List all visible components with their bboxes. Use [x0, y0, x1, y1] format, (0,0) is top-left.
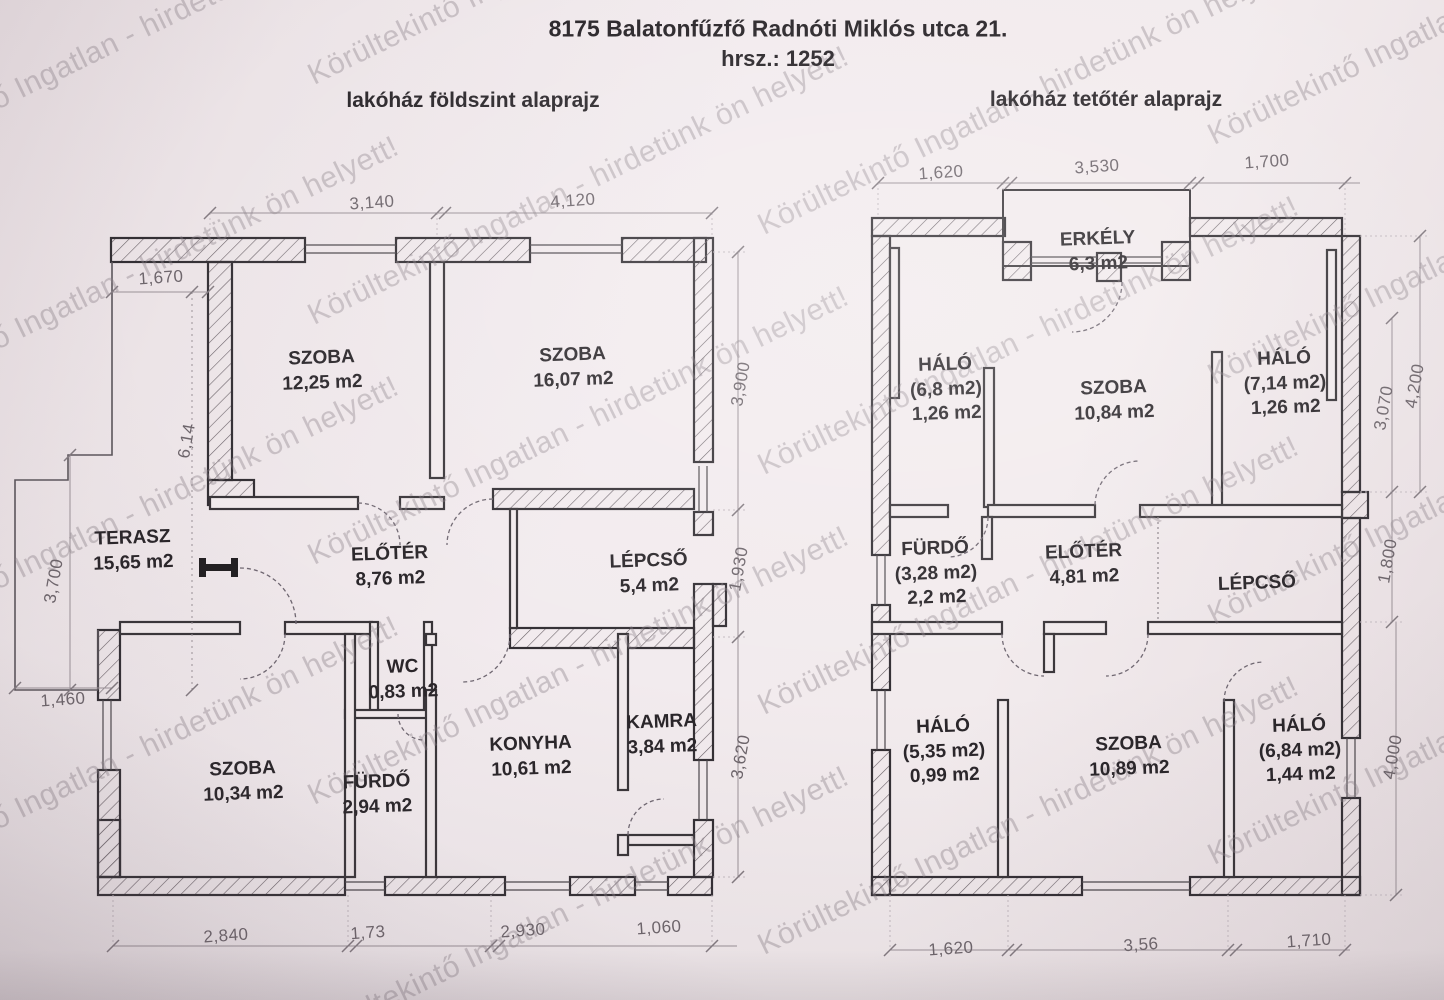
dim-label: 1,620 — [918, 161, 964, 184]
room-label-szoba-1225: SZOBA 12,25 m2 — [281, 345, 363, 397]
room-label-lepcso-attic: LÉPCSŐ — [1218, 570, 1297, 597]
dim-label: 2,840 — [203, 924, 249, 947]
room-area: 16,07 m2 — [533, 367, 614, 394]
room-area: 5,4 m2 — [610, 573, 689, 600]
dim-label: 3,530 — [1074, 155, 1120, 178]
room-area: 10,34 m2 — [203, 781, 284, 808]
room-name: SZOBA — [1073, 375, 1154, 402]
room-area: 3,84 m2 — [627, 734, 699, 761]
room-name: LÉPCSŐ — [609, 548, 688, 575]
dim-label: 2,930 — [500, 919, 546, 942]
room-area: 12,25 m2 — [282, 370, 363, 397]
room-label-wc: WC 0,83 m2 — [367, 654, 438, 706]
room-area: 15,65 m2 — [93, 550, 174, 577]
room-name: WC — [367, 654, 438, 681]
room-name: SZOBA — [281, 345, 362, 372]
room-area: 1,44 m2 — [1259, 762, 1342, 790]
room-label-kamra: KAMRA 3,84 m2 — [626, 709, 698, 761]
dim-label: 1,060 — [636, 916, 682, 939]
room-area: 0,83 m2 — [368, 679, 439, 706]
room-name: LÉPCSŐ — [1218, 570, 1297, 597]
room-label-konyha: KONYHA 10,61 m2 — [489, 731, 573, 783]
room-area-paren: (3,28 m2) — [894, 560, 977, 588]
room-name: ERKÉLY — [1059, 226, 1135, 253]
room-label-szoba-1089: SZOBA 10,89 m2 — [1088, 731, 1170, 783]
room-area: 2,94 m2 — [342, 794, 413, 821]
room-label-halo-714: HÁLÓ (7,14 m2) 1,26 m2 — [1243, 346, 1328, 423]
room-area: 1,26 m2 — [911, 401, 984, 428]
room-label-szoba-1084: SZOBA 10,84 m2 — [1073, 375, 1155, 427]
room-label-halo-535: HÁLÓ (5,35 m2) 0,99 m2 — [902, 714, 987, 791]
room-name: SZOBA — [202, 756, 283, 783]
dim-label: 3,56 — [1123, 934, 1159, 956]
dim-label: 4,120 — [550, 189, 596, 212]
room-label-halo-68: HÁLÓ (6,8 m2) 1,26 m2 — [909, 352, 983, 429]
room-label-eloter-attic: ELŐTÉR 4,81 m2 — [1045, 539, 1124, 591]
room-area: 10,61 m2 — [490, 756, 573, 784]
dim-label: 1,700 — [1244, 150, 1290, 173]
room-label-erkely: ERKÉLY 6,3 m2 — [1059, 226, 1136, 278]
room-label-szoba-1034: SZOBA 10,34 m2 — [202, 756, 284, 808]
floorplan-scan-page: Körültekintő Ingatlan - hirdetünk ön hel… — [0, 0, 1444, 1000]
room-area: 0,99 m2 — [903, 763, 986, 791]
room-label-furdo-ground: FÜRDŐ 2,94 m2 — [341, 769, 412, 821]
room-name: SZOBA — [532, 342, 613, 369]
room-name: HÁLÓ — [902, 714, 985, 742]
terasz-outline — [15, 262, 112, 690]
room-area: 1,26 m2 — [1244, 395, 1327, 423]
room-area-paren: (6,84 m2) — [1258, 737, 1341, 765]
dim-label: 1,670 — [138, 266, 184, 289]
ground-floor-subtitle: lakóház földszint alaprajz — [346, 89, 599, 113]
room-name: HÁLÓ — [1243, 346, 1326, 374]
room-name: ELŐTÉR — [1045, 539, 1123, 566]
room-name: HÁLÓ — [1258, 713, 1341, 741]
room-name: KAMRA — [626, 709, 698, 736]
room-label-lepcso-ground: LÉPCSŐ 5,4 m2 — [609, 548, 689, 600]
dim-label: 1,73 — [350, 922, 386, 944]
parcel-number: hrsz.: 1252 — [721, 46, 835, 72]
room-name: FÜRDŐ — [894, 536, 977, 564]
room-area: 10,89 m2 — [1089, 756, 1170, 783]
room-area-paren: (6,8 m2) — [910, 376, 983, 403]
room-name: FÜRDŐ — [341, 769, 412, 796]
room-label-furdo-attic: FÜRDŐ (3,28 m2) 2,2 m2 — [894, 536, 979, 613]
page-title: 8175 Balatonfűzfő Radnóti Miklós utca 21… — [549, 16, 1008, 43]
room-area-paren: (5,35 m2) — [902, 738, 985, 766]
room-label-terasz: TERASZ 15,65 m2 — [92, 525, 174, 577]
floorplan-drawing — [0, 0, 1444, 1000]
room-label-halo-684: HÁLÓ (6,84 m2) 1,44 m2 — [1258, 713, 1343, 790]
room-area: 2,2 m2 — [895, 585, 978, 613]
dim-label: 3,140 — [349, 191, 395, 214]
room-area: 4,81 m2 — [1045, 564, 1123, 591]
room-name: HÁLÓ — [909, 352, 982, 379]
door-threshold-icon — [199, 558, 238, 577]
room-name: ELŐTÉR — [351, 541, 429, 568]
room-name: TERASZ — [92, 525, 173, 552]
room-name: KONYHA — [489, 731, 572, 759]
room-area: 10,84 m2 — [1074, 400, 1155, 427]
room-label-eloter-ground: ELŐTÉR 8,76 m2 — [351, 541, 430, 593]
ground-floor-door-arcs — [240, 499, 664, 835]
room-area: 6,3 m2 — [1060, 251, 1136, 278]
dim-label: 1,620 — [928, 937, 974, 960]
room-name: SZOBA — [1088, 731, 1169, 758]
attic-floor-subtitle: lakóház tetőtér alaprajz — [990, 88, 1222, 112]
room-label-szoba-1607: SZOBA 16,07 m2 — [532, 342, 614, 394]
dim-label: 1,460 — [40, 688, 86, 711]
room-area: 8,76 m2 — [351, 566, 429, 593]
room-area-paren: (7,14 m2) — [1243, 370, 1326, 398]
dim-label: 1,710 — [1286, 929, 1332, 952]
